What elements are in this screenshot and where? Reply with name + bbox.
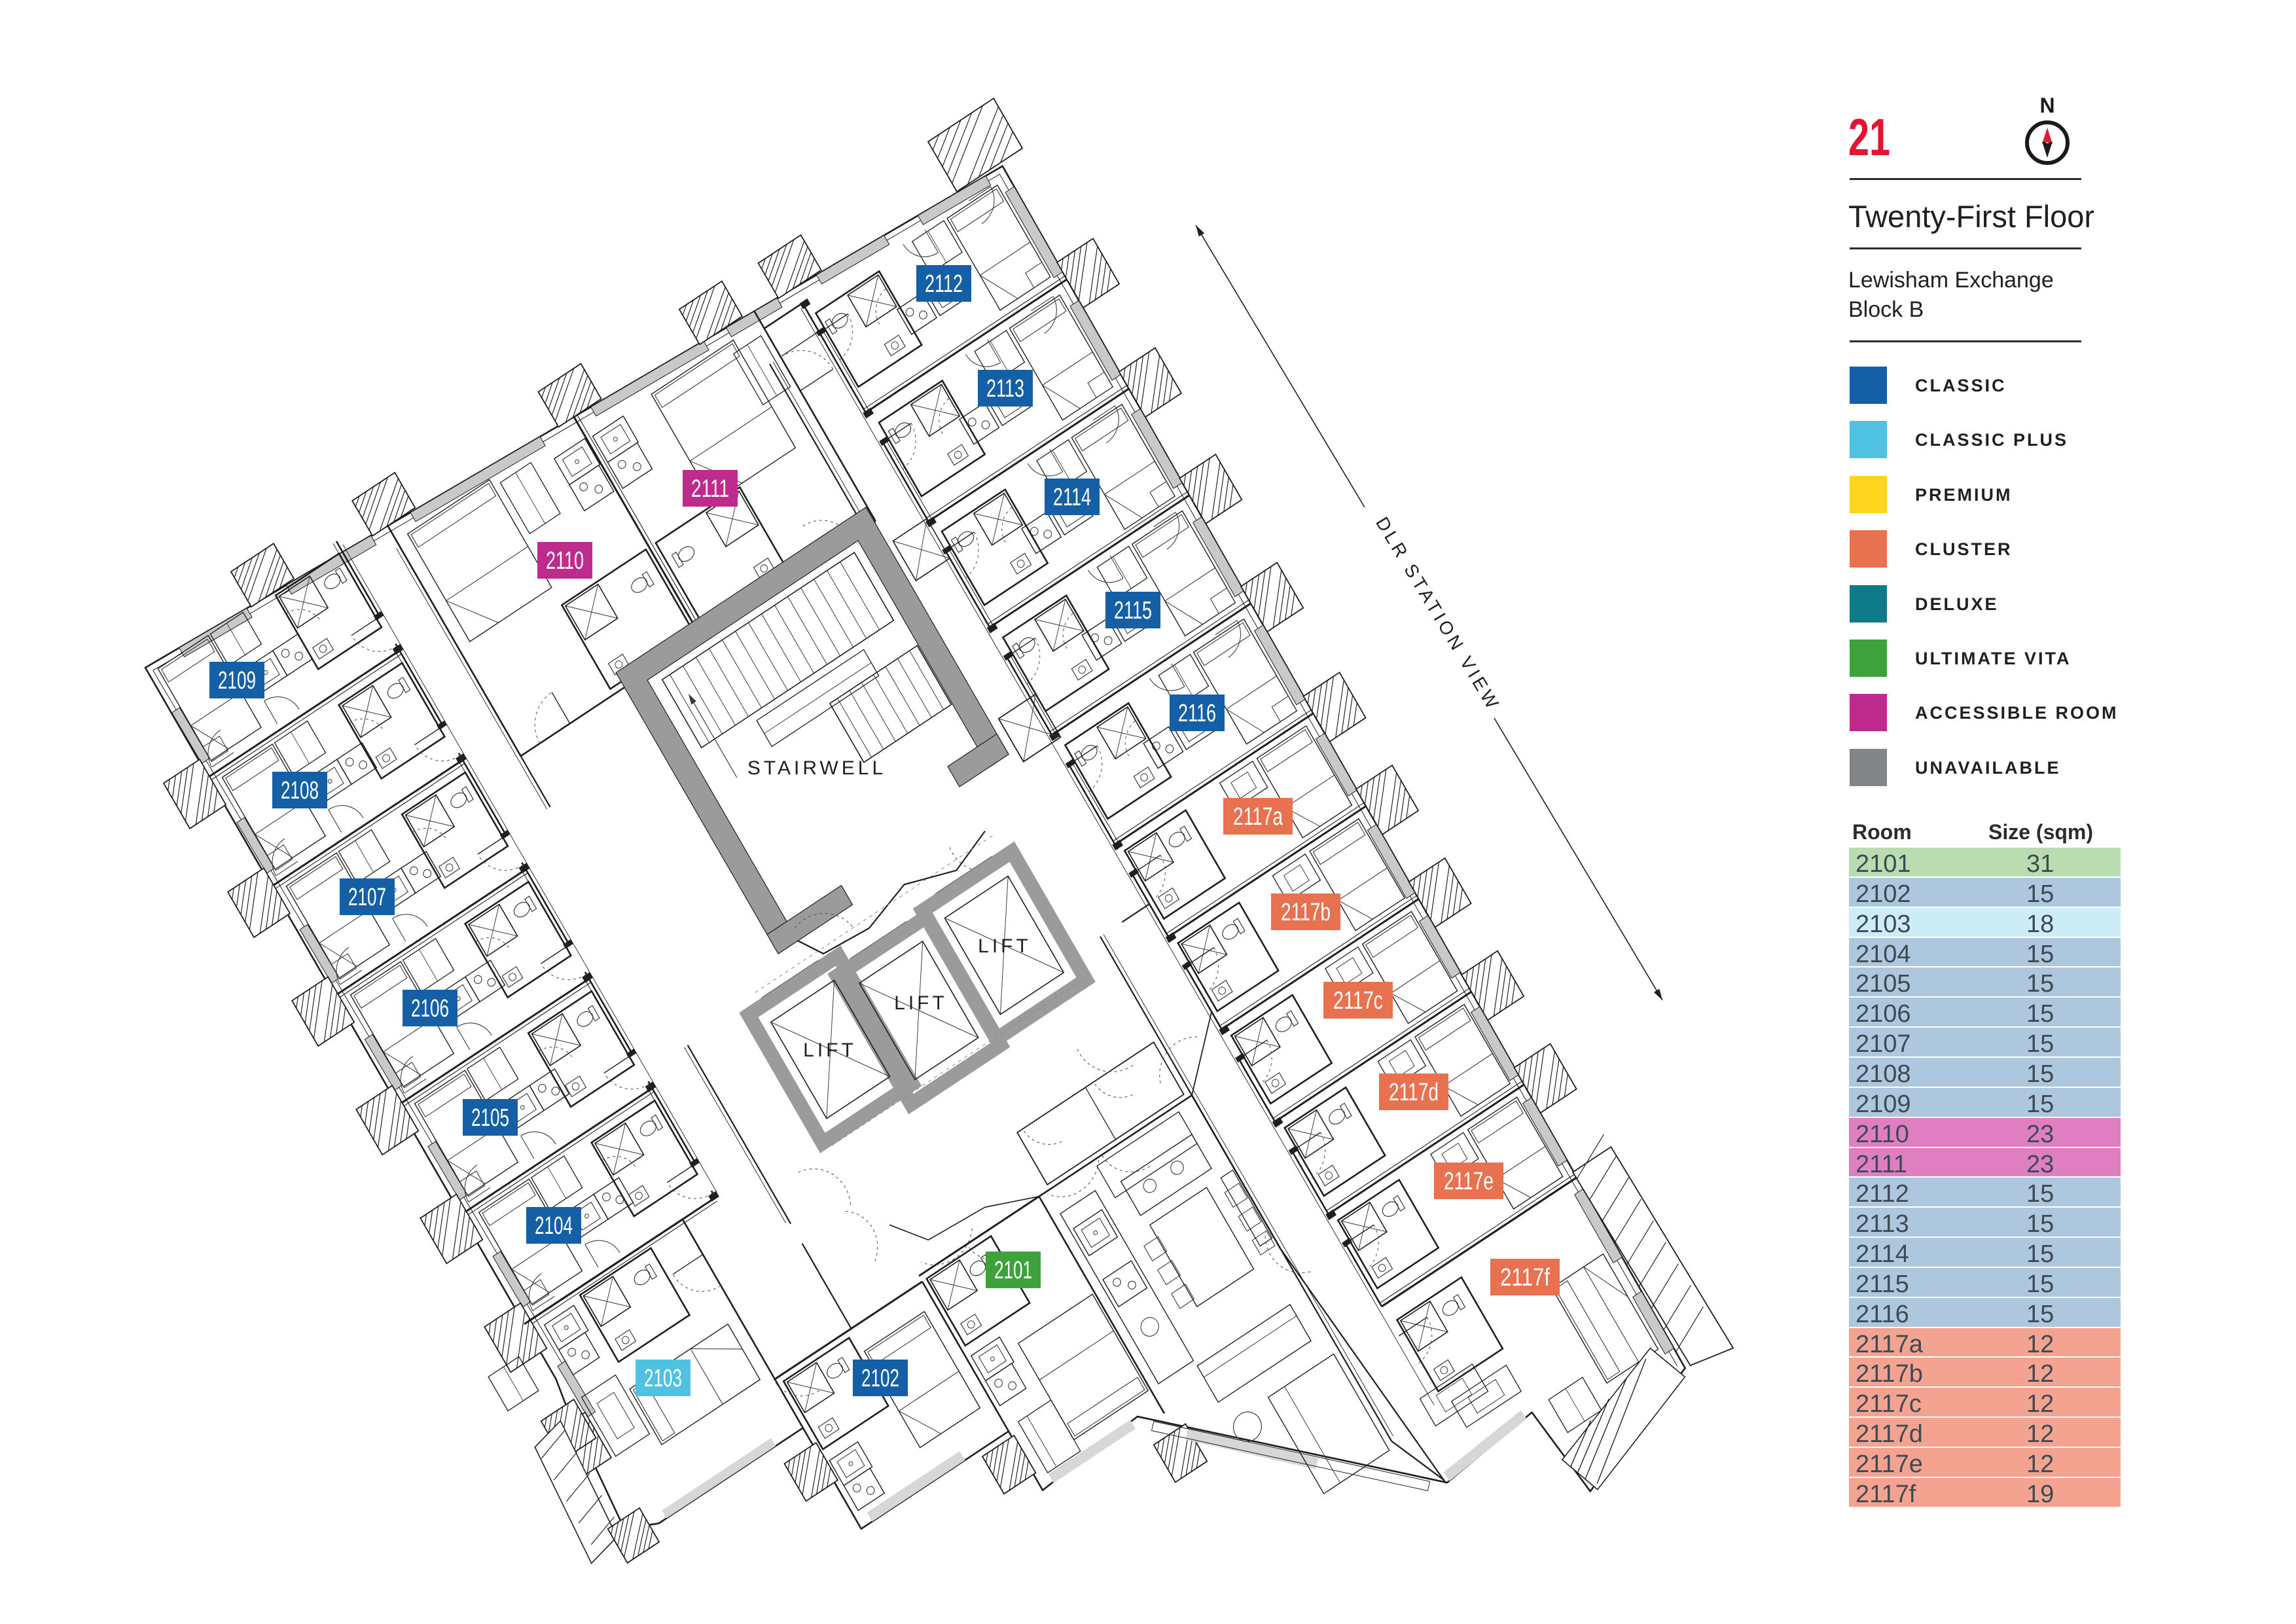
svg-text:LIFT: LIFT (894, 992, 948, 1014)
svg-text:N: N (2039, 94, 2054, 117)
svg-text:2103: 2103 (644, 1365, 682, 1392)
svg-text:STAIRWELL: STAIRWELL (747, 757, 886, 779)
svg-text:2112: 2112 (925, 270, 963, 298)
svg-text:2101: 2101 (994, 1257, 1032, 1284)
svg-text:2105: 2105 (471, 1104, 509, 1132)
svg-text:2117c: 2117c (1333, 987, 1383, 1015)
svg-text:2104: 2104 (535, 1212, 573, 1240)
svg-text:2117b: 2117b (1281, 899, 1331, 926)
svg-text:2108: 2108 (281, 777, 319, 804)
svg-text:2111: 2111 (691, 475, 729, 503)
svg-text:2117a: 2117a (1233, 803, 1283, 831)
svg-text:2109: 2109 (218, 667, 256, 695)
svg-text:2116: 2116 (1178, 700, 1216, 727)
svg-text:2110: 2110 (546, 547, 584, 575)
svg-text:2117e: 2117e (1444, 1168, 1494, 1195)
svg-text:2117f: 2117f (1500, 1264, 1550, 1291)
svg-text:2117d: 2117d (1389, 1079, 1439, 1106)
svg-text:2114: 2114 (1053, 484, 1091, 511)
svg-text:LIFT: LIFT (803, 1039, 857, 1061)
svg-text:2107: 2107 (348, 884, 386, 911)
svg-text:2113: 2113 (986, 375, 1024, 403)
svg-text:2106: 2106 (411, 995, 449, 1022)
svg-text:2102: 2102 (861, 1365, 899, 1392)
svg-text:DLR STATION VIEW: DLR STATION VIEW (1372, 513, 1504, 714)
svg-text:2115: 2115 (1114, 597, 1152, 624)
svg-text:LIFT: LIFT (978, 935, 1031, 957)
